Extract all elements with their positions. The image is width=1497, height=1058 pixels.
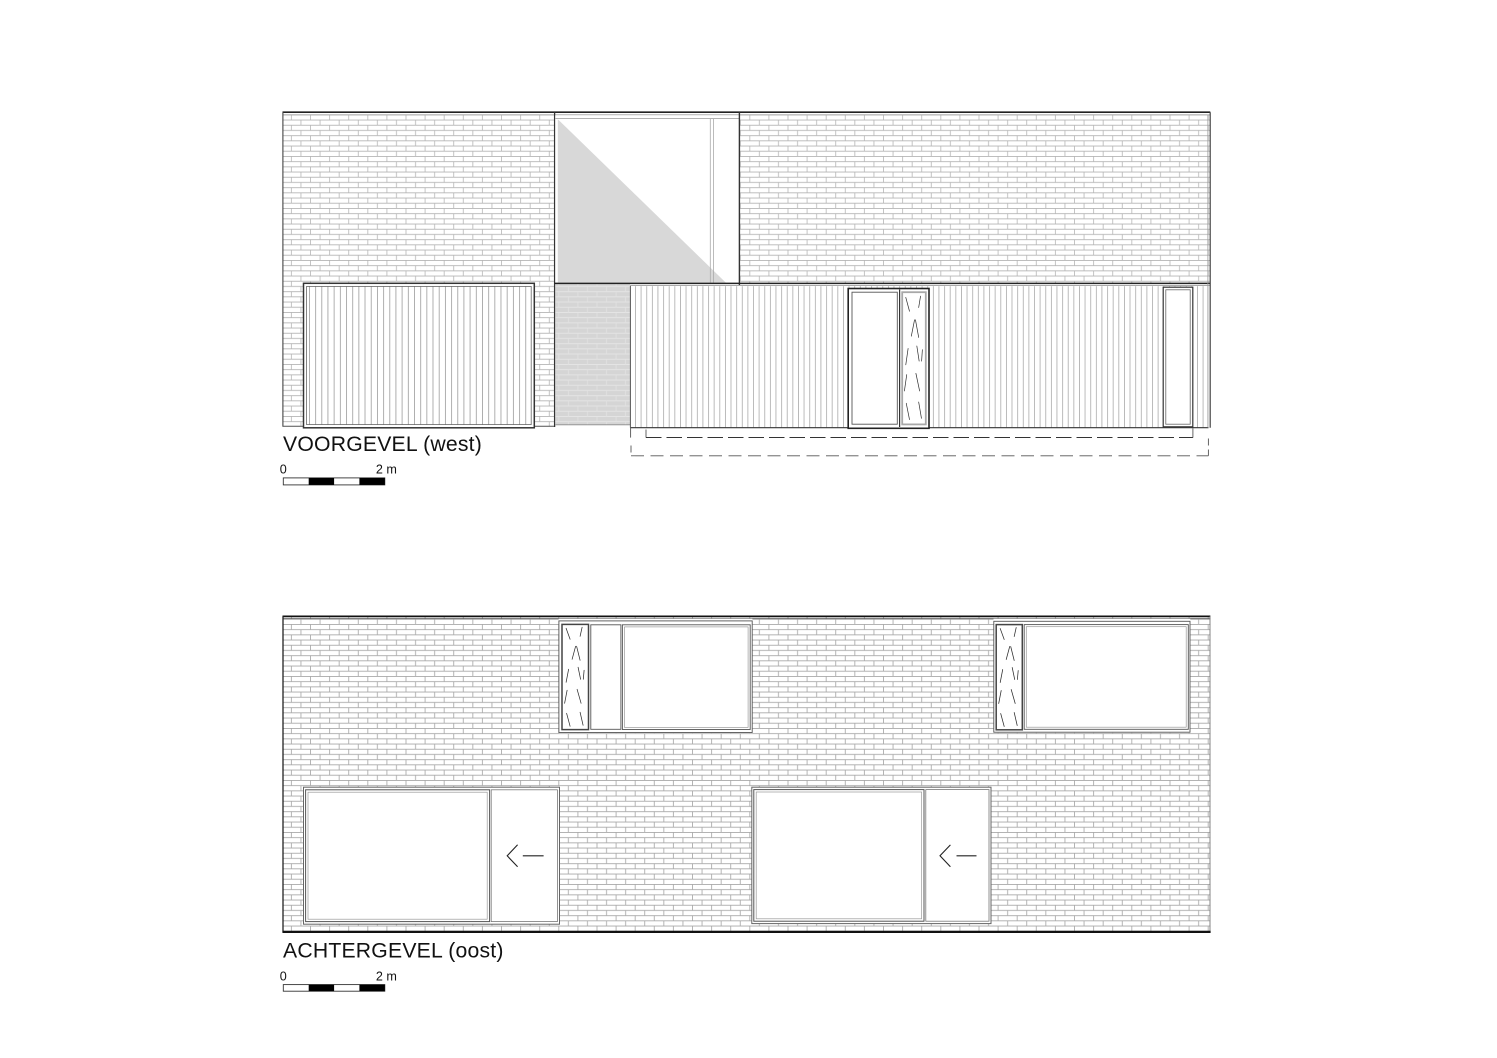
svg-text:0: 0	[280, 969, 287, 983]
svg-text:2 m: 2 m	[376, 462, 397, 476]
svg-text:0: 0	[280, 462, 287, 476]
svg-text:VOORGEVEL (west): VOORGEVEL (west)	[283, 433, 482, 456]
svg-text:2 m: 2 m	[376, 969, 397, 983]
svg-text:ACHTERGEVEL (oost): ACHTERGEVEL (oost)	[283, 940, 504, 963]
